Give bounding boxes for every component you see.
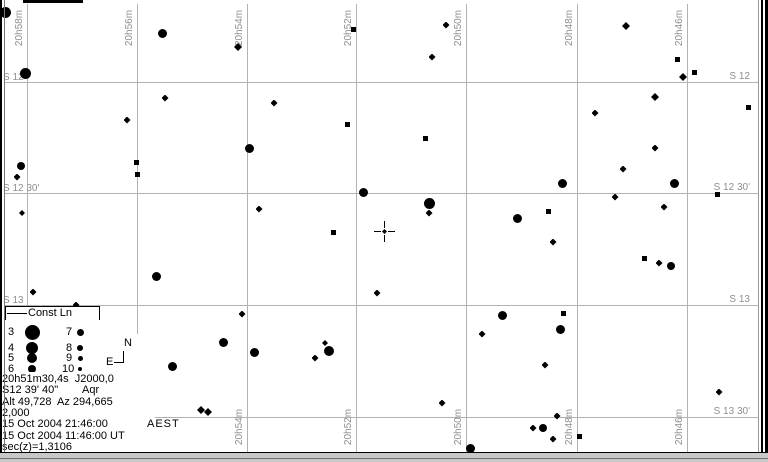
- status-readout-line: 15 Oct 2004 21:46:00: [2, 419, 108, 430]
- crosshair-up-tick: [384, 221, 385, 228]
- sky-chart-window: 20h58m20h56m20h54m20h52m20h50m20h48m20h4…: [0, 0, 768, 462]
- star[interactable]: [675, 57, 680, 62]
- star[interactable]: [652, 145, 659, 152]
- status-readout: 20h51m30,4s J2000,0S12 39' 40" AqrAlt 49…: [0, 372, 155, 452]
- star[interactable]: [197, 406, 205, 414]
- magnitude-sample-dot: [27, 353, 37, 363]
- star[interactable]: [30, 289, 37, 296]
- ra-label-bottom: 20h48m: [564, 405, 576, 449]
- star[interactable]: [661, 204, 668, 211]
- star[interactable]: [245, 144, 254, 153]
- star[interactable]: [612, 194, 619, 201]
- star[interactable]: [715, 192, 720, 197]
- ra-gridline: [247, 4, 248, 452]
- ra-label-top: 20h46m: [674, 6, 686, 50]
- star[interactable]: [577, 434, 582, 439]
- star[interactable]: [542, 362, 549, 369]
- star[interactable]: [324, 346, 334, 356]
- magnitude-value-label: 3: [8, 327, 14, 338]
- compass-north-label: N: [124, 337, 132, 349]
- status-readout-line: Alt 49,728 Az 294,665: [2, 397, 113, 408]
- star[interactable]: [351, 27, 356, 32]
- star[interactable]: [554, 413, 561, 420]
- star[interactable]: [513, 214, 522, 223]
- dec-label-right: S 13 30': [714, 406, 750, 417]
- ra-gridline: [466, 4, 467, 452]
- star[interactable]: [679, 73, 687, 81]
- compass-rose: N E: [103, 334, 151, 372]
- ra-label-bottom: 20h50m: [453, 405, 465, 449]
- ra-gridline: [577, 4, 578, 452]
- compass-east-arm: [114, 362, 124, 363]
- star[interactable]: [250, 348, 259, 357]
- magnitude-sample-dot: [78, 356, 83, 361]
- star[interactable]: [561, 311, 566, 316]
- star[interactable]: [345, 122, 350, 127]
- star[interactable]: [746, 105, 751, 110]
- window-border-right-inner: [758, 0, 759, 452]
- star[interactable]: [124, 117, 131, 124]
- star[interactable]: [168, 362, 177, 371]
- magnitude-sample-dot: [78, 367, 82, 371]
- star[interactable]: [359, 188, 368, 197]
- crosshair-down-tick: [384, 235, 385, 242]
- magnitude-value-label: 7: [66, 327, 72, 338]
- ra-label-top: 20h50m: [453, 6, 465, 50]
- star[interactable]: [256, 206, 263, 213]
- ra-label-top: 20h56m: [124, 6, 136, 50]
- legend-title: Const Ln: [28, 307, 72, 320]
- star[interactable]: [642, 256, 647, 261]
- ra-label-bottom: 20h52m: [343, 405, 355, 449]
- legend-box[interactable]: Const Ln: [5, 306, 100, 321]
- star[interactable]: [423, 136, 428, 141]
- star[interactable]: [135, 172, 140, 177]
- dec-label-left: S 12 30': [3, 183, 39, 194]
- ra-label-top: 20h58m: [14, 6, 26, 50]
- star[interactable]: [429, 54, 436, 61]
- star[interactable]: [622, 22, 630, 30]
- star[interactable]: [158, 29, 167, 38]
- ra-gridline: [687, 4, 688, 452]
- star[interactable]: [550, 436, 557, 443]
- ra-label-top: 20h54m: [234, 6, 246, 50]
- star[interactable]: [556, 325, 565, 334]
- dec-gridline: [5, 82, 759, 83]
- window-border-left: [0, 0, 2, 462]
- titlebar-fragment: [23, 0, 83, 3]
- constellation-line-sample: [7, 313, 27, 314]
- star[interactable]: [692, 70, 697, 75]
- star[interactable]: [550, 239, 557, 246]
- star[interactable]: [219, 338, 228, 347]
- star[interactable]: [539, 424, 547, 432]
- star[interactable]: [716, 389, 723, 396]
- star[interactable]: [424, 198, 435, 209]
- star[interactable]: [20, 68, 31, 79]
- window-border-left-inner: [4, 0, 5, 452]
- star[interactable]: [162, 95, 169, 102]
- star[interactable]: [592, 110, 599, 117]
- star[interactable]: [530, 425, 537, 432]
- window-border-right: [761, 0, 763, 462]
- ra-label-bottom: 20h46m: [674, 405, 686, 449]
- star[interactable]: [670, 179, 679, 188]
- star[interactable]: [651, 93, 659, 101]
- ra-label-bottom: 20h54m: [234, 405, 246, 449]
- star[interactable]: [558, 179, 567, 188]
- star[interactable]: [331, 230, 336, 235]
- star[interactable]: [620, 166, 627, 173]
- compass-east-label: E: [106, 356, 113, 368]
- dec-label-right: S 13: [729, 294, 750, 305]
- magnitude-sample-dot: [77, 345, 83, 351]
- star[interactable]: [656, 260, 663, 267]
- star[interactable]: [443, 22, 450, 29]
- dec-gridline: [5, 305, 759, 306]
- magnitude-sample-dot: [25, 325, 40, 340]
- dec-label-left: S 13: [3, 295, 24, 306]
- star[interactable]: [17, 162, 25, 170]
- star[interactable]: [426, 210, 433, 217]
- ra-gridline: [356, 4, 357, 452]
- magnitude-sample-dot: [77, 329, 84, 336]
- magnitude-legend: 374859610: [2, 320, 114, 374]
- star[interactable]: [479, 331, 486, 338]
- star[interactable]: [374, 290, 381, 297]
- timezone-label: AEST: [147, 418, 180, 430]
- star[interactable]: [439, 400, 446, 407]
- crosshair-center-dot: [382, 229, 387, 234]
- dec-label-right: S 12: [729, 71, 750, 82]
- star[interactable]: [14, 174, 21, 181]
- crosshair-left-tick: [374, 231, 381, 232]
- star[interactable]: [667, 262, 675, 270]
- ra-label-top: 20h48m: [564, 6, 576, 50]
- star[interactable]: [152, 272, 161, 281]
- star[interactable]: [134, 160, 139, 165]
- status-readout-line: 15 Oct 2004 11:46:00 UT: [2, 431, 125, 442]
- star[interactable]: [498, 311, 507, 320]
- star[interactable]: [239, 311, 246, 318]
- crosshair-right-tick: [388, 231, 395, 232]
- status-readout-line: S12 39' 40" Aqr: [2, 385, 99, 396]
- star[interactable]: [312, 355, 319, 362]
- star[interactable]: [271, 100, 278, 107]
- star[interactable]: [204, 408, 212, 416]
- star[interactable]: [19, 210, 25, 216]
- star[interactable]: [546, 209, 551, 214]
- dec-gridline: [5, 193, 759, 194]
